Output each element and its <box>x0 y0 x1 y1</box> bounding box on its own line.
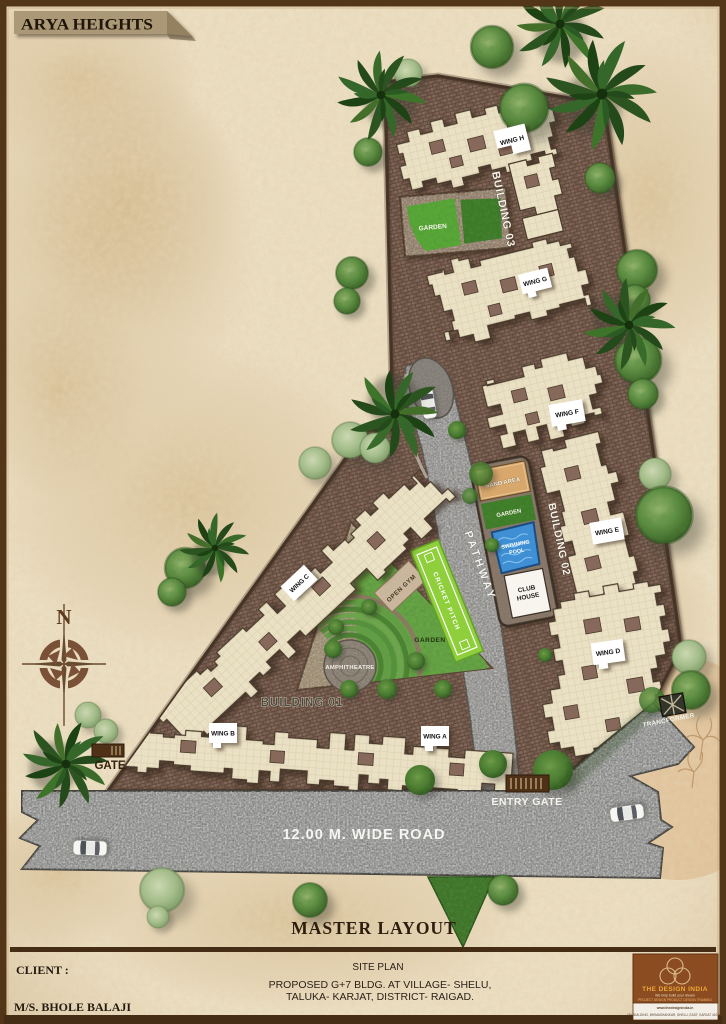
svg-text:PROJECT DESIGN PRODUCT DESIG: PROJECT DESIGN PRODUCT DESIGN TRAINING <box>638 998 712 1002</box>
svg-text:M/S. BHOLE BALAJI: M/S. BHOLE BALAJI <box>14 1000 131 1014</box>
svg-text:www.thedesignindia.in: www.thedesignindia.in <box>656 1006 694 1010</box>
svg-text:CLIENT :: CLIENT : <box>16 963 69 977</box>
svg-text:MASTER LAYOUT: MASTER LAYOUT <box>291 918 457 938</box>
svg-text:MY BUILDING, BHIMASHANKAR, SHE: MY BUILDING, BHIMASHANKAR, SHELU, EAST, … <box>627 1013 723 1017</box>
svg-text:SITE PLAN: SITE PLAN <box>352 962 403 973</box>
svg-text:We help build your dream: We help build your dream <box>655 994 695 998</box>
svg-text:TALUKA- KARJAT, DISTRICT- RAIG: TALUKA- KARJAT, DISTRICT- RAIGAD. <box>286 991 474 1003</box>
svg-text:ARYA HEIGHTS: ARYA HEIGHTS <box>21 17 153 34</box>
svg-text:THE DESIGN INDIA: THE DESIGN INDIA <box>642 986 708 993</box>
svg-text:PROPOSED G+7 BLDG. AT VILLAGE-: PROPOSED G+7 BLDG. AT VILLAGE- SHELU, <box>269 979 492 991</box>
